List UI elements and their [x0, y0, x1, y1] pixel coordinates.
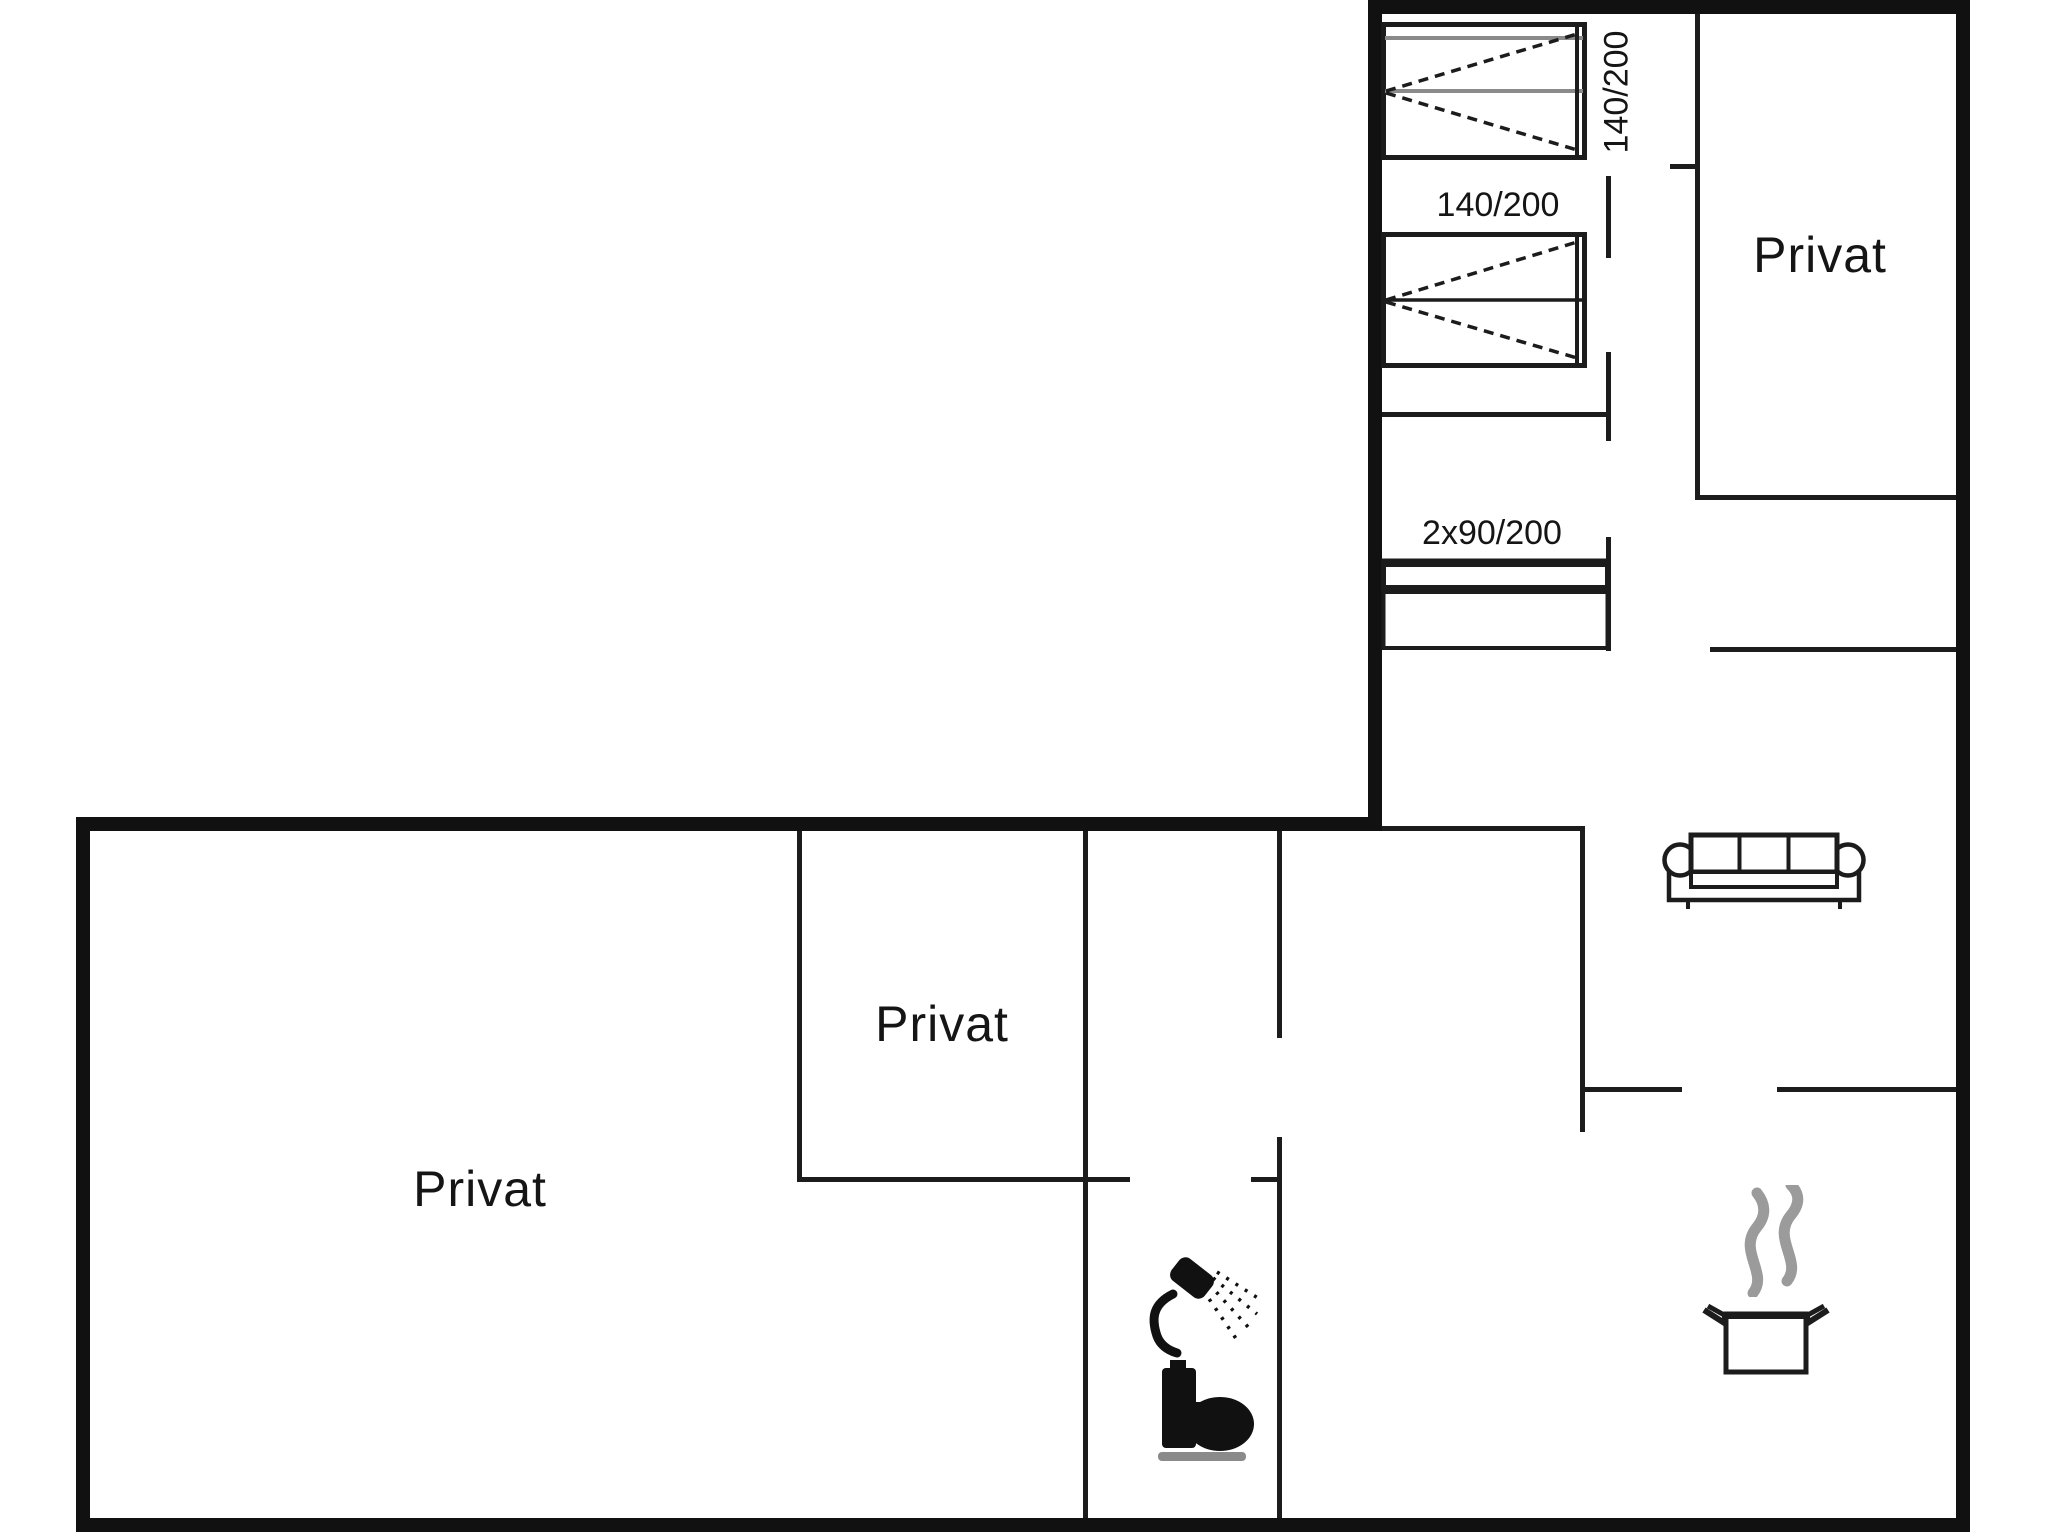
double-bed-icon	[1381, 22, 1587, 160]
wall-kitchen-divider-left	[1583, 1087, 1682, 1092]
steam-icon	[1735, 1185, 1819, 1297]
wall-outer-topwing-left	[1368, 0, 1382, 831]
wall-outer-bottomwing-left	[76, 817, 90, 1532]
room-label-privat-middle: Privat	[822, 995, 1062, 1053]
wall-middleroom-west	[797, 831, 802, 1182]
wall-middleroom-bottom	[797, 1177, 1130, 1182]
sofa-icon	[1658, 826, 1870, 926]
wall-outer-bottom	[76, 1518, 1970, 1532]
wall-privat-door-jamb	[1670, 164, 1695, 169]
wall-bedrooms-divider	[1382, 412, 1610, 417]
wall-privat-upper-bottom	[1695, 495, 1956, 500]
room-label-privat-upper: Privat	[1700, 226, 1940, 284]
wall-kitchen-divider-right	[1777, 1087, 1956, 1092]
wall-hall-east-upper	[1277, 831, 1282, 1038]
wall-hall-east-lower	[1277, 1137, 1282, 1518]
toilet-icon	[1150, 1360, 1262, 1466]
bed-top-dimension-label: 140/200	[1598, 31, 1637, 154]
bunk-bed-icon	[1381, 556, 1610, 651]
shower-icon	[1145, 1250, 1267, 1366]
wall-hall-stub-2	[1606, 352, 1611, 441]
wall-shower-door-jamb	[1251, 1177, 1282, 1182]
wall-hall-stub-1	[1606, 176, 1611, 258]
bunk-dimension-label: 2x90/200	[1402, 514, 1582, 553]
room-label-privat-large: Privat	[360, 1160, 600, 1218]
floor-plan: Privat Privat Privat 140/200 140/200 2x9…	[0, 0, 2048, 1536]
wall-outer-right	[1956, 0, 1970, 1532]
wall-outer-top	[1368, 0, 1970, 14]
wall-below-privat	[1710, 647, 1956, 652]
wall-outer-bottomwing-top	[76, 817, 1382, 831]
wall-long-divider	[1083, 831, 1088, 1518]
cooking-pot-icon	[1700, 1292, 1832, 1376]
bed-middle-dimension-label: 140/200	[1408, 186, 1588, 225]
wall-wing-bottom-thin	[1382, 826, 1585, 831]
double-bed-icon	[1381, 232, 1587, 368]
